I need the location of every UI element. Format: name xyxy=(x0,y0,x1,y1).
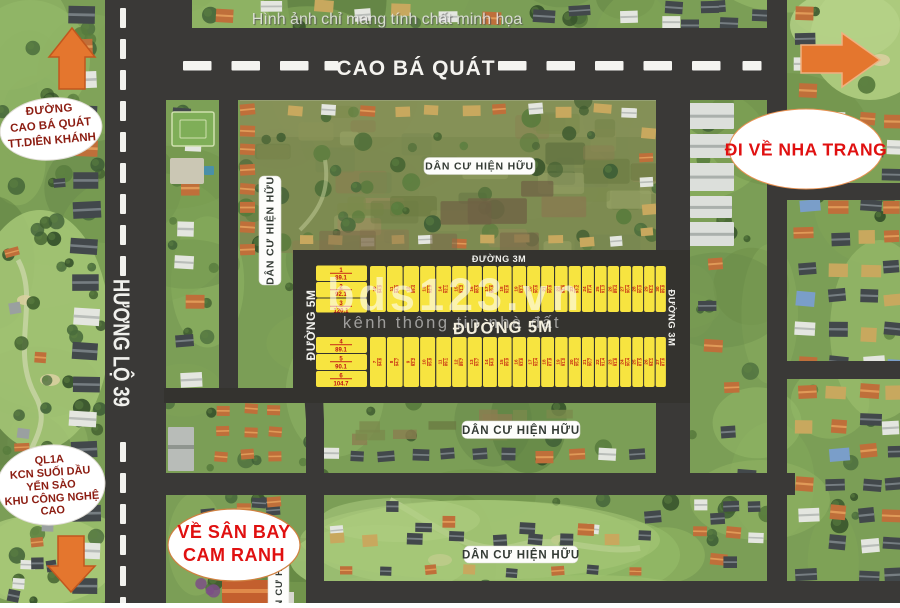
svg-text:87.6: 87.6 xyxy=(661,357,666,366)
svg-text:ĐƯỜNG 3M: ĐƯỜNG 3M xyxy=(666,290,678,347)
svg-text:8: 8 xyxy=(389,360,394,363)
svg-text:90.7: 90.7 xyxy=(588,357,593,366)
svg-text:94.1: 94.1 xyxy=(649,357,654,366)
svg-text:bds123.vn: bds123.vn xyxy=(327,269,583,320)
svg-text:CAO BÁ QUÁT: CAO BÁ QUÁT xyxy=(336,57,495,80)
svg-text:94.0: 94.0 xyxy=(490,357,495,366)
svg-text:HƯƠNG LỘ 39: HƯƠNG LỘ 39 xyxy=(109,279,136,407)
svg-text:93.7: 93.7 xyxy=(474,357,479,366)
svg-text:94.6: 94.6 xyxy=(378,357,383,366)
svg-text:16: 16 xyxy=(513,359,518,365)
svg-text:87.4: 87.4 xyxy=(588,284,593,293)
svg-text:89.8: 89.8 xyxy=(661,284,666,293)
svg-text:ĐI VỀ NHA TRANG: ĐI VỀ NHA TRANG xyxy=(725,139,887,160)
svg-text:DÂN CƯ HIỆN HỮU: DÂN CƯ HIỆN HỮU xyxy=(264,176,277,285)
svg-text:26: 26 xyxy=(643,359,648,365)
svg-text:kênh thông tin nhà đất: kênh thông tin nhà đất xyxy=(343,314,561,332)
svg-text:27: 27 xyxy=(620,286,625,292)
svg-text:89.1: 89.1 xyxy=(443,357,448,366)
svg-text:87.5: 87.5 xyxy=(637,357,642,366)
svg-text:ĐƯỜNG 5M: ĐƯỜNG 5M xyxy=(303,290,318,361)
svg-text:18: 18 xyxy=(542,359,547,365)
svg-text:DÂN CƯ HIỆN HỮU: DÂN CƯ HIỆN HỮU xyxy=(462,424,580,437)
svg-text:7: 7 xyxy=(372,360,377,363)
svg-text:87.8: 87.8 xyxy=(547,357,552,366)
svg-text:94.7: 94.7 xyxy=(394,357,399,366)
svg-text:90.1: 90.1 xyxy=(335,365,347,371)
svg-text:15: 15 xyxy=(499,359,504,365)
svg-text:20: 20 xyxy=(569,359,574,365)
svg-text:13: 13 xyxy=(469,359,474,365)
svg-text:QL1A: QL1A xyxy=(34,453,64,467)
svg-text:12: 12 xyxy=(453,359,458,365)
svg-text:27: 27 xyxy=(655,359,660,365)
svg-text:95.8: 95.8 xyxy=(427,357,432,366)
svg-text:17: 17 xyxy=(528,359,533,365)
svg-text:90.4: 90.4 xyxy=(625,284,630,293)
svg-text:92.4: 92.4 xyxy=(533,357,538,366)
svg-text:11: 11 xyxy=(438,359,443,364)
svg-text:ĐƯỜNG 3M: ĐƯỜNG 3M xyxy=(472,253,526,264)
svg-text:14: 14 xyxy=(484,359,489,365)
svg-text:CAM RANH: CAM RANH xyxy=(183,545,285,565)
svg-text:26: 26 xyxy=(607,286,612,292)
svg-text:Hình ảnh chỉ mang tính chất mi: Hình ảnh chỉ mang tính chất minh họa xyxy=(252,11,522,28)
svg-text:90.4: 90.4 xyxy=(625,357,630,366)
svg-text:9: 9 xyxy=(405,360,410,363)
svg-text:91.0: 91.0 xyxy=(561,357,566,366)
svg-text:28: 28 xyxy=(632,286,637,292)
svg-text:89.4: 89.4 xyxy=(613,284,618,293)
svg-text:90.0: 90.0 xyxy=(637,284,642,293)
svg-text:91.4: 91.4 xyxy=(600,357,605,366)
svg-text:VỀ SÂN BAY: VỀ SÂN BAY xyxy=(177,521,290,542)
svg-text:30: 30 xyxy=(655,286,660,292)
svg-text:25: 25 xyxy=(632,359,637,365)
svg-text:DÂN CƯ HIỆN HỮU: DÂN CƯ HIỆN HỮU xyxy=(462,549,580,562)
svg-text:95.2: 95.2 xyxy=(574,357,579,366)
svg-text:19: 19 xyxy=(555,359,560,365)
svg-text:104.7: 104.7 xyxy=(333,382,349,388)
svg-text:89.1: 89.1 xyxy=(335,348,347,354)
svg-text:93.2: 93.2 xyxy=(411,357,416,366)
svg-text:DÂN CƯ HIỆN HỮU: DÂN CƯ HIỆN HỮU xyxy=(425,160,534,173)
svg-text:10: 10 xyxy=(422,359,427,365)
svg-text:89.7: 89.7 xyxy=(459,357,464,366)
svg-text:94.1: 94.1 xyxy=(649,284,654,293)
svg-text:22: 22 xyxy=(595,359,600,365)
svg-text:CAO: CAO xyxy=(40,504,66,518)
svg-text:23: 23 xyxy=(607,359,612,365)
svg-text:29: 29 xyxy=(643,286,648,292)
svg-text:91.6: 91.6 xyxy=(613,357,618,366)
svg-text:21: 21 xyxy=(582,359,587,365)
svg-text:91.3: 91.3 xyxy=(600,284,605,293)
svg-text:89.9: 89.9 xyxy=(504,357,509,366)
svg-text:25: 25 xyxy=(595,286,600,292)
svg-text:93.6: 93.6 xyxy=(519,357,524,366)
svg-text:24: 24 xyxy=(620,359,625,365)
